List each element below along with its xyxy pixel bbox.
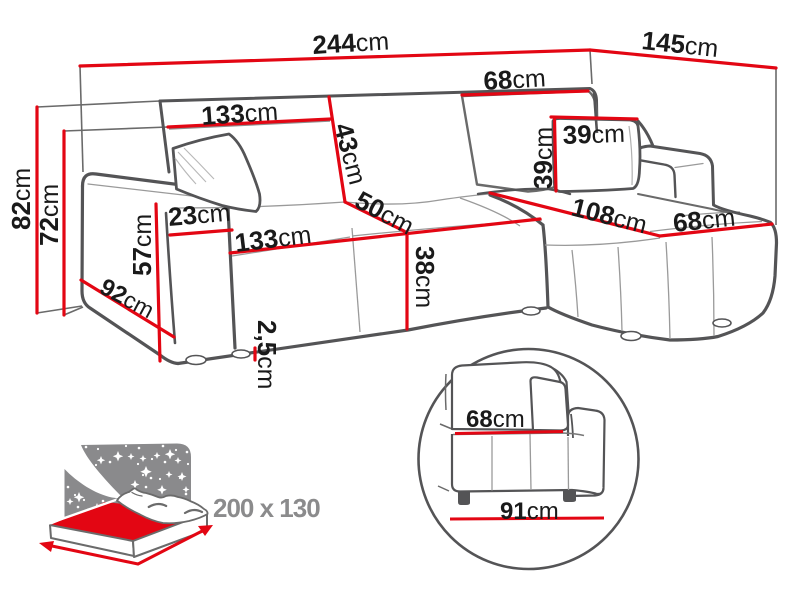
svg-text:68cm: 68cm [483,62,547,96]
svg-text:91cm: 91cm [500,498,559,525]
svg-text:68cm: 68cm [466,406,525,433]
svg-text:39cm: 39cm [562,118,625,150]
svg-text:23cm: 23cm [167,197,232,232]
svg-text:38cm: 38cm [410,246,440,308]
svg-text:2,5cm: 2,5cm [252,320,282,389]
svg-text:200 x 130: 200 x 130 [213,493,320,523]
svg-text:72cm: 72cm [34,184,64,246]
svg-text:133cm: 133cm [200,96,279,131]
svg-text:244cm: 244cm [312,25,390,60]
svg-text:57cm: 57cm [127,214,157,276]
svg-text:82cm: 82cm [6,168,36,230]
svg-text:39cm: 39cm [528,127,558,189]
